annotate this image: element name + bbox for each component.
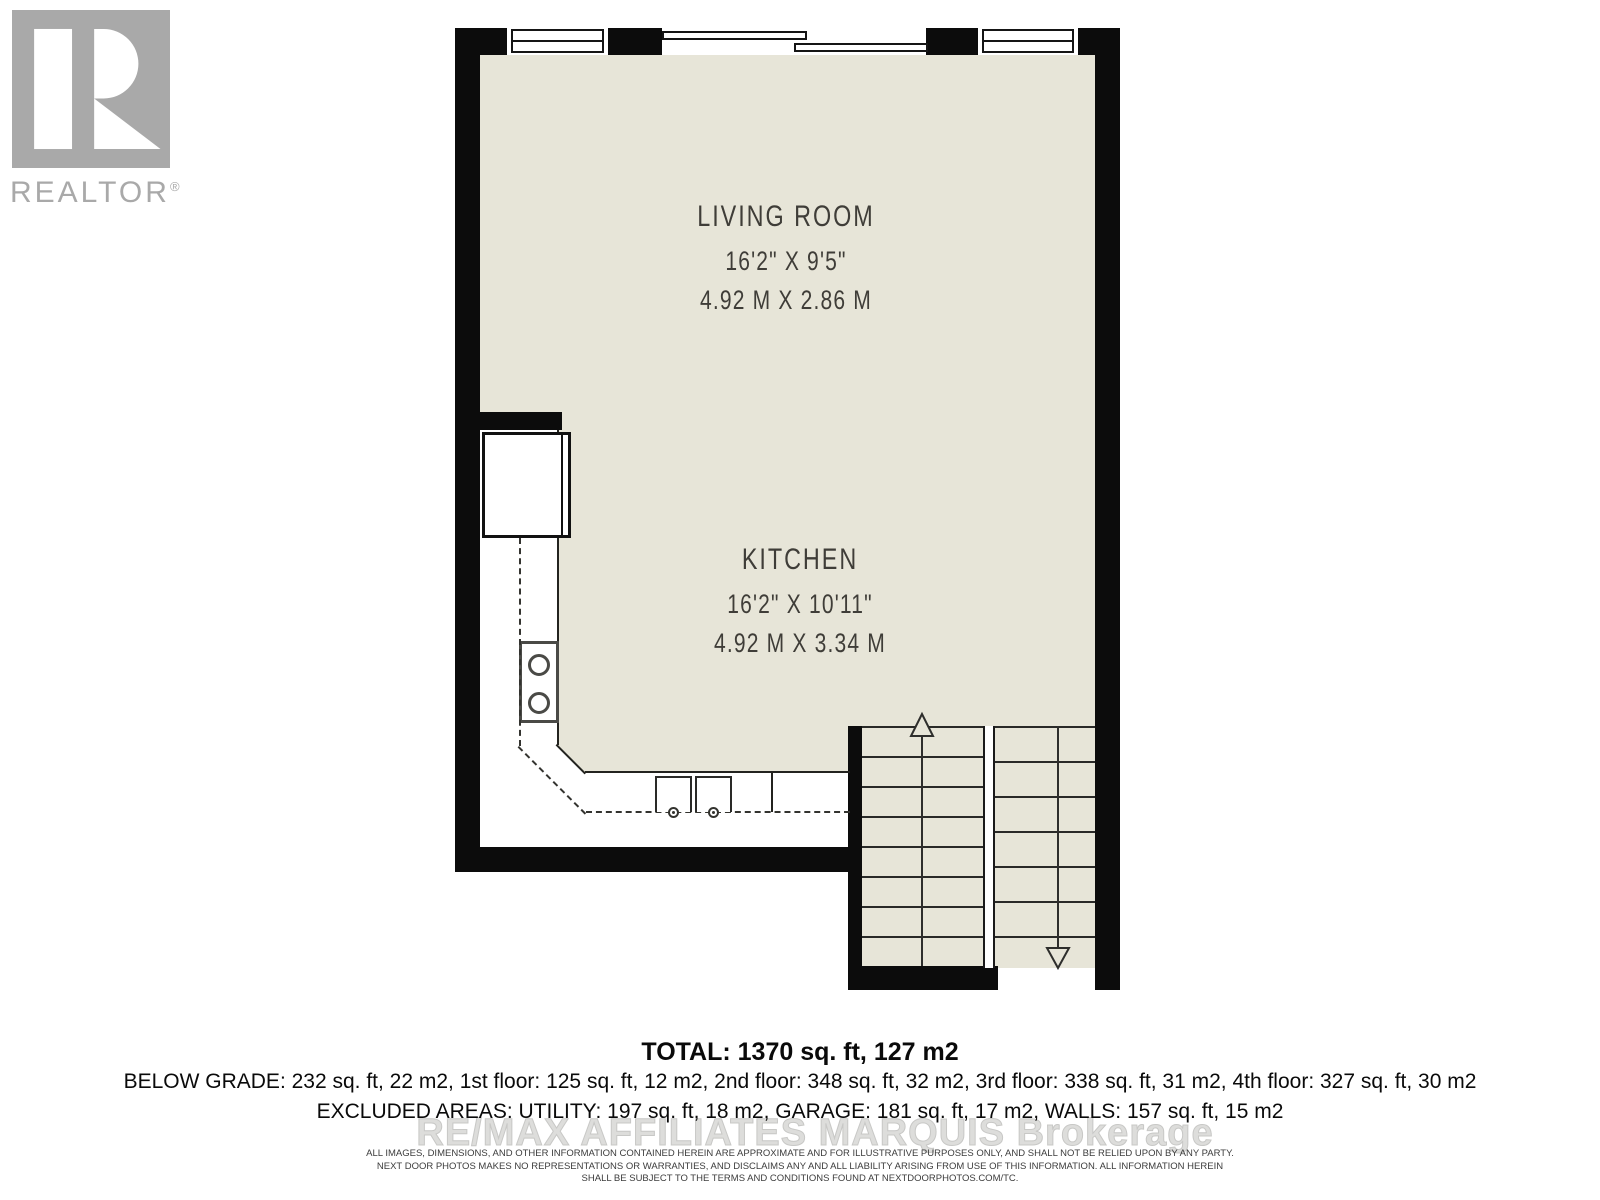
faucet-dot: [672, 811, 675, 814]
refrigerator: [482, 432, 571, 538]
window-mullion: [984, 40, 1072, 42]
room-dimensions-imperial: 16'2" X 9'5": [614, 246, 957, 277]
window-right: [982, 29, 1074, 53]
registered-mark: ®: [170, 179, 180, 194]
disclaimer-text: ALL IMAGES, DIMENSIONS, AND OTHER INFORM…: [366, 1148, 1234, 1186]
realtor-logo-mark: [12, 10, 170, 168]
room-dimensions-imperial: 16'2" X 10'11": [628, 589, 971, 620]
room-dimensions-metric: 4.92 M X 2.86 M: [614, 285, 957, 316]
stove: [519, 641, 559, 723]
sink-basin-left: [655, 776, 692, 812]
counter-dashed-line-vertical: [519, 538, 521, 746]
total-area-text: TOTAL: 1370 sq. ft, 127 m2: [641, 1038, 958, 1067]
floor-areas-text: BELOW GRADE: 232 sq. ft, 22 m2, 1st floo…: [124, 1070, 1477, 1094]
living-room-label: LIVING ROOM 16'2" X 9'5" 4.92 M X 2.86 M: [614, 200, 957, 324]
left-wall: [455, 28, 480, 872]
stove-burner: [528, 654, 550, 676]
excluded-areas-text: EXCLUDED AREAS: UTILITY: 197 sq. ft, 18 …: [317, 1100, 1284, 1124]
room-name: LIVING ROOM: [614, 200, 957, 234]
sink-basin-right: [695, 776, 732, 812]
top-wall-segment-3: [926, 28, 978, 55]
wall-stub: [480, 412, 562, 430]
counter-edge-bottom: [585, 771, 850, 773]
stairs-down-arrow-icon: [1047, 948, 1069, 968]
sliding-door-panel-upper: [662, 31, 807, 40]
window-mullion: [513, 40, 602, 42]
room-name: KITCHEN: [628, 543, 971, 577]
disclaimer-line-2: NEXT DOOR PHOTOS MAKES NO REPRESENTATION…: [366, 1161, 1234, 1174]
kitchen-label: KITCHEN 16'2" X 10'11" 4.92 M X 3.34 M: [628, 543, 971, 667]
stair-direction-arrows: [850, 700, 1120, 1000]
realtor-logo-text: REALTOR®: [10, 176, 200, 210]
realtor-r-icon: [12, 10, 170, 168]
room-dimensions-metric: 4.92 M X 3.34 M: [628, 628, 971, 659]
sink-faucet: [668, 807, 679, 818]
sliding-door-panel-lower: [794, 43, 928, 52]
sink-faucet: [708, 807, 719, 818]
counter-divider-line: [771, 773, 773, 812]
bottom-wall: [455, 847, 862, 872]
top-wall-segment-1: [455, 28, 507, 55]
refrigerator-door-line: [561, 435, 563, 535]
stairs-up-arrow-icon: [911, 714, 933, 736]
faucet-dot: [712, 811, 715, 814]
window-left: [511, 29, 604, 53]
disclaimer-line-3: SHALL BE SUBJECT TO THE TERMS AND CONDIT…: [366, 1173, 1234, 1186]
top-wall-segment-4: [1078, 28, 1120, 55]
stove-burner: [528, 692, 550, 714]
disclaimer-line-1: ALL IMAGES, DIMENSIONS, AND OTHER INFORM…: [366, 1148, 1234, 1161]
realtor-word: REALTOR: [10, 176, 170, 209]
top-wall-segment-2: [608, 28, 662, 55]
